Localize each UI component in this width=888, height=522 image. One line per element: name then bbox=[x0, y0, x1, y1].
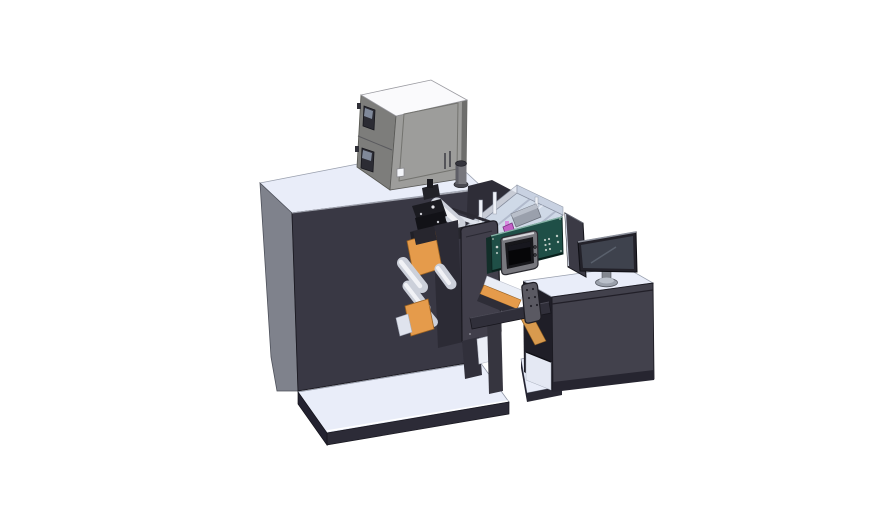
cabinet-hinge-lower bbox=[355, 146, 359, 152]
shelf-leg bbox=[487, 315, 503, 394]
cylinder-cap bbox=[456, 161, 467, 167]
housing-screw-1 bbox=[492, 238, 494, 240]
cad-render-stage: Isometric 3D CAD render of an industrial… bbox=[0, 0, 888, 522]
cabinet-label-plate bbox=[397, 168, 404, 177]
cover-panel-screw bbox=[469, 333, 471, 335]
touchscreen bbox=[501, 231, 538, 275]
housing-dot-2 bbox=[496, 252, 498, 254]
touchscreen-button-1 bbox=[534, 246, 537, 249]
machine-render: Isometric 3D CAD render of an industrial… bbox=[0, 0, 888, 522]
mechanism-top-pin bbox=[427, 179, 433, 188]
handle-face bbox=[522, 282, 541, 323]
enclosure-post-2 bbox=[493, 192, 497, 214]
handle-panel bbox=[522, 282, 541, 323]
mechanism-bolt-2 bbox=[420, 213, 422, 215]
housing-dot-1 bbox=[496, 246, 499, 249]
mechanism-bolt-3 bbox=[437, 221, 439, 223]
cabinet-hinge-upper bbox=[357, 103, 361, 109]
touchscreen-button-2 bbox=[534, 254, 537, 257]
mechanism-bolt-1 bbox=[431, 205, 434, 208]
electrical-cabinet bbox=[355, 80, 468, 190]
housing-screw-3 bbox=[560, 250, 562, 252]
cabinet-cylinder bbox=[454, 161, 468, 188]
housing-screw-2 bbox=[559, 218, 561, 220]
monitor-base-top bbox=[599, 278, 614, 284]
